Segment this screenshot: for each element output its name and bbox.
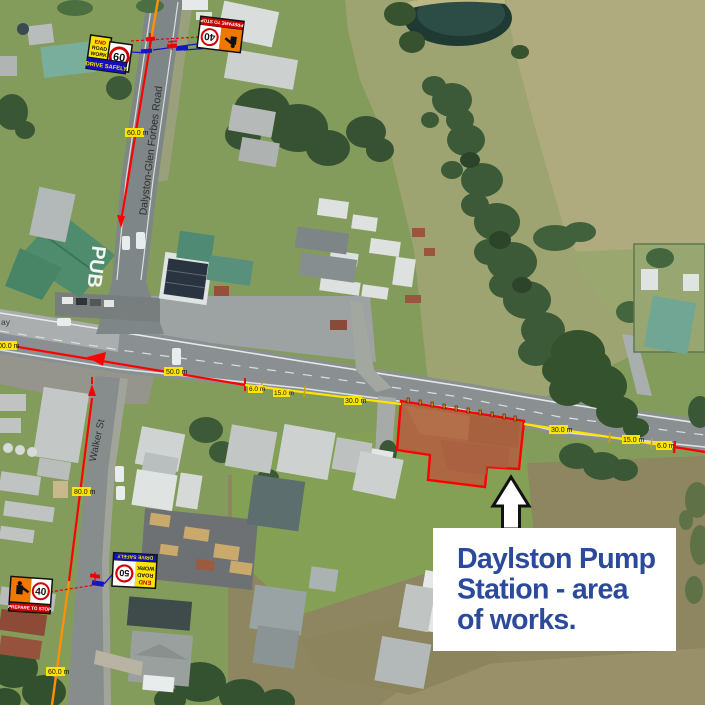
svg-text:00.0 m: 00.0 m (0, 343, 20, 350)
svg-text:6.0 m: 6.0 m (249, 386, 265, 393)
svg-text:WORK: WORK (137, 564, 155, 571)
svg-text:ROAD: ROAD (137, 571, 154, 578)
svg-text:of works.: of works. (457, 604, 576, 636)
svg-text:40: 40 (35, 586, 47, 598)
svg-text:6.0 m: 6.0 m (657, 443, 675, 450)
svg-text:30.0 m: 30.0 m (345, 398, 367, 405)
svg-text:40: 40 (203, 30, 216, 42)
svg-text:Station - area: Station - area (457, 574, 630, 606)
svg-text:50: 50 (119, 568, 130, 579)
svg-text:80.0 m: 80.0 m (74, 489, 96, 496)
svg-text:15.0 m: 15.0 m (274, 390, 294, 397)
svg-text:50.0 m: 50.0 m (166, 369, 188, 376)
svg-text:ay: ay (1, 317, 11, 327)
svg-text:30.0 m: 30.0 m (551, 427, 573, 434)
svg-text:60.0 m: 60.0 m (127, 130, 149, 137)
svg-text:60.0 m: 60.0 m (48, 669, 70, 676)
svg-text:Daylston Pump: Daylston Pump (457, 543, 656, 575)
svg-text:15.0 m: 15.0 m (623, 437, 645, 444)
svg-text:END: END (138, 578, 152, 585)
